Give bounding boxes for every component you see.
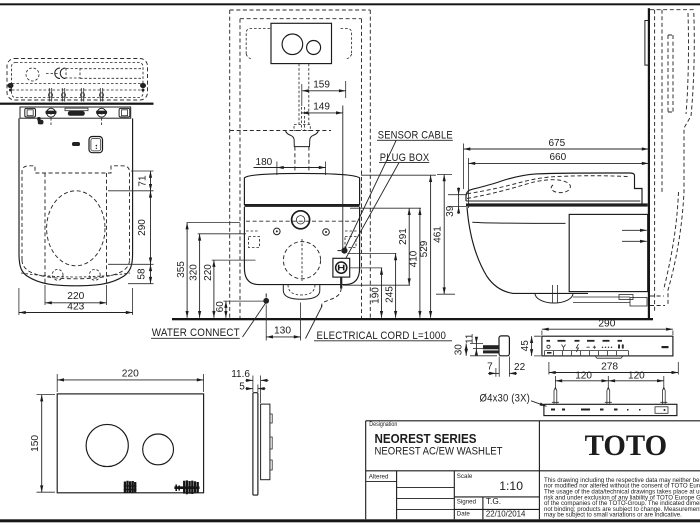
svg-text:60: 60 [215,301,226,313]
svg-text:22: 22 [514,362,526,373]
svg-text:245: 245 [385,286,396,303]
svg-text:TOTO: TOTO [585,430,668,462]
svg-text:660: 660 [549,152,566,163]
svg-text:291: 291 [398,228,409,245]
svg-text:320: 320 [189,264,200,281]
svg-text:355: 355 [176,261,187,278]
svg-text:ELECTRICAL CORD L=1000: ELECTRICAL CORD L=1000 [317,330,447,342]
svg-text:120: 120 [628,370,645,381]
svg-text:290: 290 [598,318,615,329]
svg-text:220: 220 [67,291,84,302]
svg-text:45: 45 [520,340,531,352]
svg-text:5: 5 [239,382,245,393]
svg-text:may be subject to small variat: may be subject to small variations or ar… [544,512,682,519]
svg-text:159: 159 [313,79,330,90]
svg-text:WATER CONNECT: WATER CONNECT [152,327,240,339]
svg-text:NEOREST SERIES: NEOREST SERIES [375,432,477,446]
svg-text:410: 410 [409,250,420,267]
svg-text:290: 290 [137,219,148,236]
svg-text:150: 150 [30,435,41,452]
svg-text:190: 190 [371,287,382,304]
svg-text:PLUG BOX: PLUG BOX [380,152,430,164]
svg-text:NEOREST AC/EW WASHLET: NEOREST AC/EW WASHLET [375,446,503,458]
svg-text:675: 675 [548,138,565,149]
svg-text:SENSOR CABLE: SENSOR CABLE [378,129,453,141]
svg-text:Scale: Scale [457,473,473,480]
svg-text:58: 58 [137,268,148,280]
svg-text:149: 149 [313,101,330,112]
svg-text:11: 11 [464,333,475,344]
svg-text:71: 71 [138,175,149,187]
svg-text:423: 423 [67,302,84,313]
svg-text:278: 278 [601,361,618,372]
svg-text:39: 39 [445,205,456,217]
svg-text:130: 130 [274,326,291,337]
svg-text:180: 180 [256,157,273,168]
svg-text:Altered: Altered [369,473,389,480]
svg-text:Date: Date [457,511,471,518]
svg-text:Designation: Designation [369,421,397,428]
svg-text:220: 220 [122,368,139,379]
svg-text:120: 120 [575,370,592,381]
svg-text:1:10: 1:10 [499,479,523,493]
svg-text:220: 220 [203,264,214,281]
svg-text:T.G.: T.G. [486,496,501,506]
svg-text:529: 529 [419,240,430,257]
svg-text:30: 30 [454,344,465,356]
svg-text:Ø4x30 (3X): Ø4x30 (3X) [480,393,531,405]
svg-text:22/10/2014: 22/10/2014 [486,508,526,518]
svg-text:11.6: 11.6 [231,369,250,380]
svg-text:7: 7 [487,362,493,373]
svg-text:Signed: Signed [457,499,477,506]
svg-text:461: 461 [433,226,444,243]
